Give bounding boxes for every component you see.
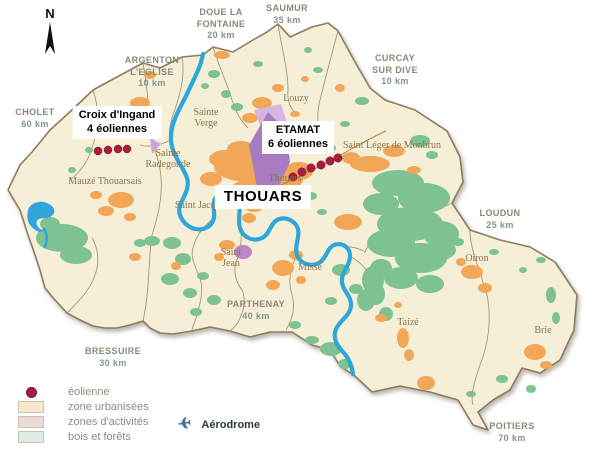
legend-item-bois-forets: bois et forêts: [18, 430, 149, 444]
wind-turbine-dot: [317, 161, 325, 169]
dest-loudun: LOUDUN25 km: [480, 208, 521, 231]
town-sainte-radegonde: SainteRadegonde: [146, 148, 191, 170]
north-arrow-icon: [45, 22, 55, 54]
dest-poitiers: POITIERS70 km: [489, 421, 534, 444]
activity-swatch-icon: [18, 416, 44, 428]
town-misse: Missé: [298, 262, 322, 273]
wind-turbine-dot: [114, 145, 122, 153]
legend-label: zone urbanisées: [68, 401, 149, 413]
wind-turbine-dot: [334, 154, 342, 162]
plane-icon: ✈: [177, 416, 193, 434]
annotation-etamat: ETAMAT6 éoliennes: [262, 121, 334, 154]
legend-item-aerodrome: ✈ Aérodrome: [178, 417, 260, 433]
wind-turbine-dot: [326, 157, 334, 165]
town-mauze-thouarsais: Mauzé Thouarsais: [68, 176, 141, 187]
annotation-croix-dingand: Croix d'Ingand4 éoliennes: [73, 106, 162, 139]
town-saint-leger-de-monbrun: Saint Léger de Monbrun: [343, 140, 441, 151]
dest-curcay-sur-dive: CURCAYSUR DIVE 10 km: [372, 53, 418, 88]
eolienne-dot-icon: [26, 387, 37, 398]
wind-turbine-dot: [94, 147, 102, 155]
legend-label: éolienne: [68, 386, 110, 398]
town-sainte-verge: SainteVerge: [194, 107, 219, 129]
wind-turbine-dot: [104, 146, 112, 154]
wind-turbine-dot: [307, 164, 315, 172]
urban-swatch-icon: [18, 401, 44, 413]
dest-argenton-leglise: ARGENTONL'EGLISE 10 km: [125, 55, 180, 90]
aerodrome-label: Aérodrome: [201, 419, 260, 431]
town-thouars: Thouars: [269, 173, 302, 184]
legend-item-zone-urbanisees: zone urbanisées: [18, 400, 149, 414]
legend-label: zones d'activités: [68, 416, 148, 428]
town-oiron: Oiron: [465, 253, 488, 264]
town-louzy: Louzy: [283, 93, 309, 104]
north-label: N: [38, 6, 62, 21]
legend-item-zones-activites: zones d'activités: [18, 415, 149, 429]
town-brie: Brie: [534, 325, 551, 336]
legend: éolienne zone urbanisées zones d'activit…: [18, 385, 149, 445]
town-saint-jean: SaintJean: [221, 247, 242, 269]
town-taize: Taizé: [397, 317, 419, 328]
dest-bressuire: BRESSUIRE30 km: [85, 346, 141, 369]
legend-item-eolienne: éolienne: [18, 385, 149, 399]
dest-doue-la-fontaine: DOUE LAFONTAINE 20 km: [197, 7, 246, 42]
map-screenshot: N CHOLET60 km DOUE LAFONTAINE 20 km SAUM…: [0, 0, 600, 472]
dest-cholet: CHOLET60 km: [15, 107, 54, 130]
city-label-thouars: THOUARS: [215, 185, 311, 209]
dest-saumur: SAUMUR35 km: [266, 3, 308, 26]
forest-swatch-icon: [18, 431, 44, 443]
dest-parthenay: PARTHENAY40 km: [227, 299, 285, 322]
wind-turbine-dot: [123, 145, 131, 153]
legend-label: bois et forêts: [68, 431, 131, 443]
